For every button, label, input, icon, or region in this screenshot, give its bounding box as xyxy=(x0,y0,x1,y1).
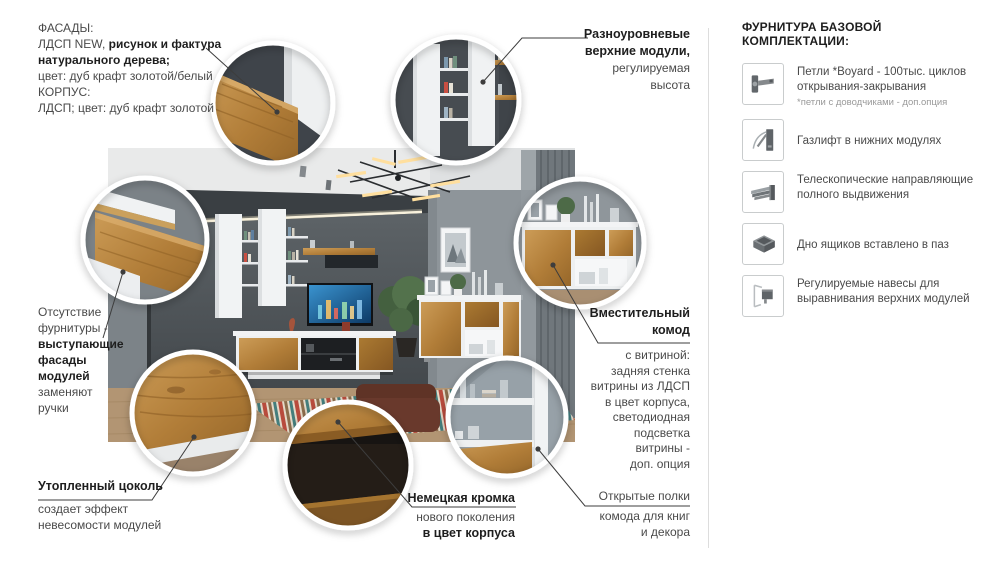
hardware-item-text: Дно ящиков вставлено в паз xyxy=(797,236,949,253)
hardware-item-text: Газлифт в нижних модулях xyxy=(797,132,941,149)
annotation-line: светодиодная xyxy=(578,410,690,426)
annotation-line: в цвет корпуса xyxy=(375,525,515,541)
annotation-line: регулируемая xyxy=(540,60,690,77)
hardware-item-slides: Телескопические направляющие полного выд… xyxy=(742,171,982,213)
wall-shelf xyxy=(303,248,375,255)
annotation-top-modules: Разноуровневые верхние модули, регулируе… xyxy=(540,26,690,94)
hardware-item-hinges: Петли *Boyard - 100тыс. циклов открывани… xyxy=(742,63,982,109)
annotation-title: Вместительный xyxy=(578,305,690,322)
annotation-line: нового поколения xyxy=(375,509,515,525)
annotation-line: КОРПУС: xyxy=(38,84,243,100)
annotation-line: ЛДСП NEW, рисунок и фактура xyxy=(38,36,243,52)
annotation-commode: Вместительный комод с витриной: задняя с… xyxy=(578,305,690,472)
hardware-item-text: Телескопические направляющие полного выд… xyxy=(797,171,973,203)
annotation-line: высота xyxy=(540,77,690,94)
annotation-plinth: Утопленный цоколь создает эффект невесом… xyxy=(38,478,208,533)
annotation-line: с витриной: xyxy=(578,348,690,364)
annotation-line: ручки xyxy=(38,400,163,416)
annotation-line: натурального дерева; xyxy=(38,52,243,68)
hardware-item-note: *петли с доводчиками - доп.опция xyxy=(797,97,966,109)
hardware-item-gas-lift: Газлифт в нижних модулях xyxy=(742,119,982,161)
annotation-open-shelves: Открытые полки комода для книг и декора xyxy=(578,488,690,540)
annotation-line: Отсутствие xyxy=(38,304,163,320)
annotation-line: невесомости модулей xyxy=(38,517,208,533)
annotation-line: модулей xyxy=(38,368,163,384)
cabinet-hanger-icon xyxy=(742,275,784,317)
annotation-line: выступающие xyxy=(38,336,163,352)
annotation-title: Немецкая кромка xyxy=(375,490,515,506)
annotation-line: фурнитуры - xyxy=(38,320,163,336)
gas-lift-icon xyxy=(742,119,784,161)
annotation-line: доп. опция xyxy=(578,457,690,473)
annotation-title: комод xyxy=(578,322,690,339)
product-sheet: ФАСАДЫ: ЛДСП NEW, рисунок и фактура нату… xyxy=(0,0,1000,578)
hardware-panel: ФУРНИТУРА БАЗОВОЙ КОМПЛЕКТАЦИИ: Петли *B… xyxy=(742,20,982,327)
annotation-line: подсветка xyxy=(578,426,690,442)
annotation-line: и декора xyxy=(578,524,690,540)
vertical-divider xyxy=(708,28,709,548)
hardware-item-text: Регулируемые навесы для выравнивания вер… xyxy=(797,275,970,307)
hardware-item-drawer-bottom: Дно ящиков вставлено в паз xyxy=(742,223,982,265)
ceiling-spot xyxy=(325,180,331,190)
hardware-panel-title: ФУРНИТУРА БАЗОВОЙ КОМПЛЕКТАЦИИ: xyxy=(742,20,982,48)
picture-frame xyxy=(441,228,470,272)
annotation-line: комода для книг xyxy=(578,508,690,524)
annotation-german-edge: Немецкая кромка нового поколения в цвет … xyxy=(375,490,515,541)
annotation-line: задняя стенка xyxy=(578,364,690,380)
tv xyxy=(307,283,373,326)
annotation-title: Открытые полки xyxy=(578,488,690,504)
annotation-line: верхние модули, xyxy=(540,43,690,60)
annotation-no-handles: Отсутствие фурнитуры - выступающие фасад… xyxy=(38,304,163,416)
annotation-line: Разноуровневые xyxy=(540,26,690,43)
annotation-line: витрины из ЛДСП xyxy=(578,379,690,395)
annotation-line: фасады xyxy=(38,352,163,368)
hardware-item-text: Петли *Boyard - 100тыс. циклов открывани… xyxy=(797,63,966,109)
annotation-title: Утопленный цоколь xyxy=(38,478,208,494)
telescopic-slides-icon xyxy=(742,171,784,213)
annotation-line: цвет: дуб крафт золотой/белый xyxy=(38,68,243,84)
annotation-line: ФАСАДЫ: xyxy=(38,20,243,36)
drawer-bottom-icon xyxy=(742,223,784,265)
hardware-item-hangers: Регулируемые навесы для выравнивания вер… xyxy=(742,275,982,317)
ceiling-spot xyxy=(299,166,306,178)
annotation-line: создает эффект xyxy=(38,501,208,517)
annotation-line: ЛДСП; цвет: дуб крафт золотой xyxy=(38,100,243,116)
annotation-line: в цвет корпуса, xyxy=(578,395,690,411)
annotation-line: витрины - xyxy=(578,441,690,457)
annotation-facades: ФАСАДЫ: ЛДСП NEW, рисунок и фактура нату… xyxy=(38,20,243,116)
annotation-line: заменяют xyxy=(38,384,163,400)
hinge-icon xyxy=(742,63,784,105)
